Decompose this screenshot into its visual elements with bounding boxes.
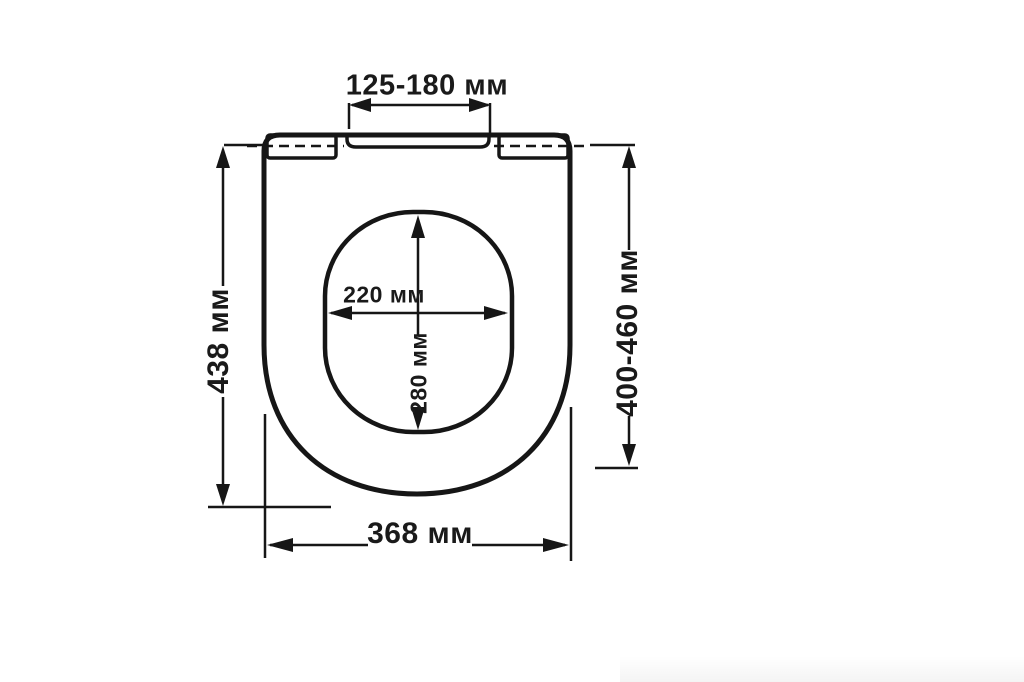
seat-dimension-drawing xyxy=(0,0,1024,682)
dim-opening-width-arrowhead-right xyxy=(484,306,508,320)
dim-width-arrowhead-left xyxy=(267,538,293,552)
dim-length-arrowhead-down xyxy=(216,484,230,506)
overall-width-label: 368 мм xyxy=(367,519,473,549)
dim-opening-width-arrowhead-left xyxy=(328,306,352,320)
dim-install-arrowhead-down xyxy=(622,444,636,466)
hinge-spacing-label: 125-180 мм xyxy=(346,72,508,101)
dim-hinge-spacing-group xyxy=(349,98,491,133)
overall-length-label: 438 мм xyxy=(204,288,234,394)
dim-width-arrowhead-right xyxy=(543,538,569,552)
install-range-label: 400-460 мм xyxy=(613,249,643,417)
lid-slot-line xyxy=(347,136,489,147)
opening-width-label: 220 мм xyxy=(343,284,425,307)
diagram-canvas: 125-180 мм 438 мм 400-460 мм 368 мм 220 … xyxy=(0,0,1024,682)
opening-depth-label: 280 мм xyxy=(408,332,431,414)
